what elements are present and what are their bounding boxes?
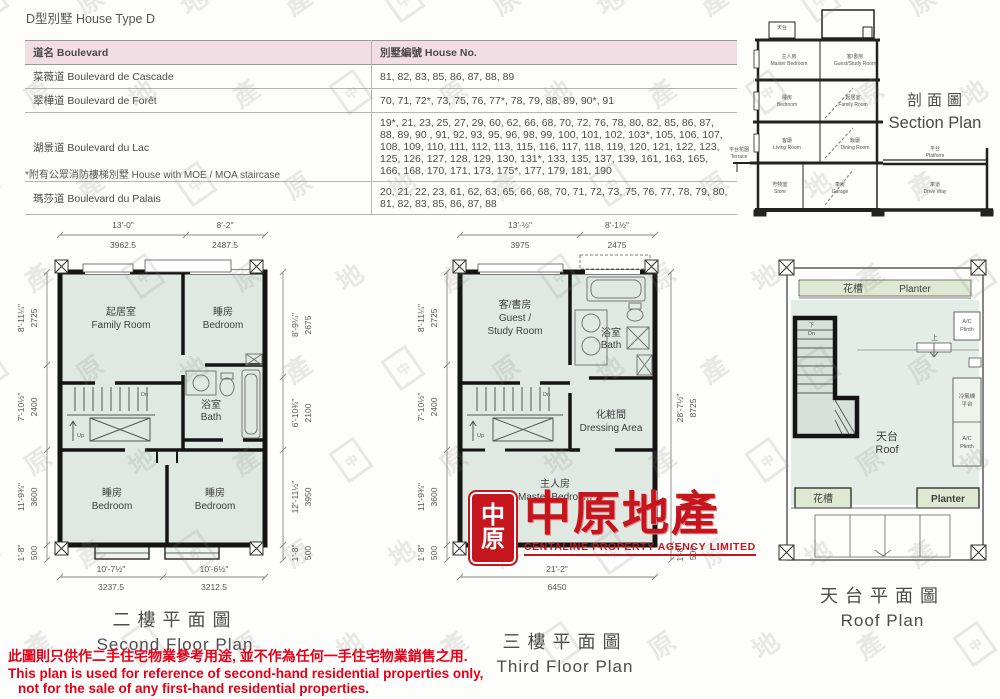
section-plan-drawing: 天台 主人房 Master Bedroom 客/書房 Guest/Study R… [725, 0, 1000, 232]
ac-label: A/C [962, 319, 971, 325]
table-header-row: 道名 Boulevard 別墅編號 House No. [25, 41, 737, 65]
boulevard-name: 翠樺道 Boulevard de Forêt [25, 89, 372, 113]
windows [478, 255, 650, 272]
room-label: Dining Room [841, 145, 870, 151]
house-numbers: 19*, 21, 23, 25, 27, 29, 60, 62, 66, 68,… [372, 113, 738, 182]
room-label-bedroom1-zh: 睡房 [213, 305, 233, 318]
room-label: Guest/Study Room [834, 61, 876, 67]
ac-platform: 冷氣機 平台 A/C Plinth [953, 378, 981, 466]
stairs-up-label: Up [477, 433, 484, 439]
dim-label: 6450 [548, 582, 567, 592]
dim-label: 2675 [303, 315, 313, 334]
room-label: 主人房 [781, 53, 796, 60]
boulevard-name: 菜薇道 Boulevard de Cascade [25, 65, 372, 89]
ac-plinth-top: A/C Plinth [954, 312, 980, 340]
room-label: 客廳 [782, 137, 792, 144]
room-label-guest-en1: Guest / [499, 313, 531, 324]
plinth-label: Plinth [960, 327, 974, 333]
section-plan-title: 剖面圖 Section Plan [889, 92, 982, 132]
second-floor-plan-drawing: Dn Up 起居室 Family Room 睡房 Bedroom 浴室 Bath… [15, 215, 335, 607]
dim-label: 6'-10¾" [290, 399, 300, 428]
ac-platform-zh2: 平台 [961, 400, 973, 408]
col-header-house-no: 別墅編號 House No. [372, 41, 738, 65]
room-label: 起居室 [845, 94, 860, 101]
room-label-bedroom2-en: Bedroom [92, 501, 133, 512]
dim-label: 11'-9¾" [416, 483, 426, 511]
centaline-seal-icon: 中 原 [468, 490, 518, 566]
roof-label-zh: 天台 [876, 429, 898, 443]
dim-label: 500 [303, 546, 313, 560]
up-label: 上 [931, 333, 938, 342]
section-room-labels: 天台 主人房 Master Bedroom 客/書房 Guest/Study R… [729, 24, 947, 195]
room-label-bath-en: Bath [601, 340, 622, 351]
room-label: 天台 [777, 24, 787, 31]
dim-label: 3600 [29, 487, 39, 506]
floor-plan-document: D型別墅 House Type D 道名 Boulevard 別墅編號 Hous… [0, 0, 1000, 699]
table-row: 瑪莎道 Boulevard du Palais 20, 21, 22, 23, … [25, 182, 737, 215]
house-numbers: 70, 71, 72*, 73, 75, 76, 77*, 78, 79, 88… [372, 89, 738, 113]
ac-label: A/C [962, 436, 971, 442]
room-label-bedroom3-en: Bedroom [195, 501, 236, 512]
dim-label: 2725 [429, 308, 439, 327]
plinth-label: Plinth [960, 444, 974, 450]
dim-label: 3962.5 [110, 240, 136, 250]
dim-label: 10'-6½" [200, 564, 229, 574]
dim-label: 500 [29, 546, 39, 560]
dim-label: 2725 [29, 308, 39, 327]
ac-platform-zh1: 冷氣機 [959, 392, 976, 400]
room-label-dressing-zh: 化粧間 [596, 408, 626, 421]
house-numbers: 81, 82, 83, 85, 86, 87, 88, 89 [372, 65, 738, 89]
dim-label: 2487.5 [212, 240, 238, 250]
section-title-zh: 剖面圖 [907, 92, 967, 109]
dim-label: 2100 [303, 403, 313, 422]
room-label: Platform [926, 153, 945, 159]
windows [83, 260, 250, 272]
dim-label: 8'-2" [217, 220, 234, 230]
top-planter: 花槽 Planter [799, 280, 971, 298]
stairs-dn-zh: 下 [809, 322, 815, 329]
room-label-bath-zh: 浴室 [201, 398, 221, 411]
table-row: 翠樺道 Boulevard de Forêt 70, 71, 72*, 73, … [25, 89, 737, 113]
stairs-up-label: Up [77, 433, 84, 439]
room-label: Bedroom [777, 102, 797, 108]
dim-label: 7'-10½" [16, 393, 26, 422]
dim-label: 8'-1½" [605, 220, 629, 230]
house-number-table: 道名 Boulevard 別墅編號 House No. 菜薇道 Boulevar… [25, 40, 737, 215]
planter-label-en: Planter [899, 284, 931, 295]
disclaimer-en2: not for the sale of any first-hand resid… [18, 681, 483, 696]
room-label: Store [774, 189, 786, 195]
dim-label: 2475 [608, 240, 627, 250]
dim-label: 12'-11½" [290, 481, 300, 514]
dim-label: 1'-8" [290, 545, 300, 562]
centaline-name: 中原地產 [524, 490, 756, 537]
house-numbers: 20, 21, 22, 23, 61, 62, 63, 65, 66, 68, … [372, 182, 738, 215]
dim-label: 3212.5 [201, 582, 227, 592]
centaline-subtitle: CENTALINE PROPERTY AGENCY LIMITED [524, 541, 756, 556]
room-label: Terrace [731, 154, 748, 160]
room-label: 車房 [835, 181, 845, 188]
col-header-boulevard: 道名 Boulevard [25, 41, 372, 65]
room-label-bath-zh: 浴室 [601, 326, 621, 339]
stairs-dn-label: Dn [543, 392, 550, 398]
room-label: 車道 [930, 181, 940, 188]
planter-br-label: Planter [931, 494, 965, 505]
room-label-family-zh: 起居室 [106, 305, 136, 318]
room-label: 貯物室 [772, 181, 787, 188]
dim-label: 8'-9¼" [290, 313, 300, 337]
room-label-bedroom2-zh: 睡房 [102, 486, 122, 499]
room-label-bath-en: Bath [201, 412, 222, 423]
room-label: 客/書房 [847, 53, 863, 60]
dim-label: 13'-0" [112, 220, 134, 230]
disclaimer-zh: 此圖則只供作二手住宅物業參考用途, 並不作為任何一手住宅物業銷售之用. [8, 646, 483, 666]
roof-title-zh: 天台平面圖 [765, 582, 1000, 608]
room-label: Drive Way [924, 189, 947, 195]
planter-bl-label: 花槽 [813, 492, 833, 505]
dim-label: 1'-8" [416, 545, 426, 562]
disclaimer-en1: This plan is used for reference of secon… [8, 666, 483, 681]
dim-label: 7'-10½" [416, 393, 426, 422]
stairs-dn-en: Dn [808, 331, 815, 337]
dim-label: 1'-8" [16, 545, 26, 562]
disclaimer: 此圖則只供作二手住宅物業參考用途, 並不作為任何一手住宅物業銷售之用. This… [8, 646, 483, 696]
room-label: 飯廳 [850, 137, 860, 144]
roof-title-en: Roof Plan [765, 611, 1000, 631]
room-label-guest-zh: 客/書房 [499, 298, 532, 311]
room-label-bedroom1-en: Bedroom [203, 320, 244, 331]
dim-label: 3950 [303, 487, 313, 506]
room-label: Garage [832, 189, 849, 195]
small-unit [969, 358, 981, 367]
planter-label-zh: 花槽 [843, 282, 863, 295]
room-label-family-en: Family Room [92, 320, 151, 331]
room-label: 睡房 [782, 94, 792, 101]
room-label: Family Room [838, 102, 867, 108]
room-label-guest-en2: Study Room [487, 326, 542, 337]
room-label: 平台花園 [729, 146, 749, 153]
dim-label: 3975 [511, 240, 530, 250]
seal-char-top: 中 [481, 504, 505, 528]
room-label-dressing-en: Dressing Area [580, 423, 643, 434]
dim-label: 2400 [429, 397, 439, 416]
dim-label: 13'-½" [508, 220, 532, 230]
page-title: D型別墅 House Type D [26, 8, 155, 27]
dim-label: 8'-11¼" [416, 304, 426, 332]
dim-label: 8'-11¼" [16, 304, 26, 332]
seal-char-bottom: 原 [481, 528, 505, 552]
centaline-logo: 中 原 中原地產 CENTALINE PROPERTY AGENCY LIMIT… [468, 490, 756, 566]
dim-label: 10'-7½" [97, 564, 126, 574]
table-footnote: *附有公眾消防樓梯別墅 House with MOE / MOA stairca… [25, 166, 280, 181]
dim-label: 3237.5 [98, 582, 124, 592]
roof-plan-drawing: 花槽 Planter 下 Dn 上 A/C Plinth [765, 250, 1000, 580]
canopy [791, 508, 979, 557]
boulevard-name: 瑪莎道 Boulevard du Palais [25, 182, 372, 215]
roof-plan-title: 天台平面圖 Roof Plan [765, 582, 1000, 631]
room-label: Master Bedroom [771, 61, 808, 67]
dim-label: 2400 [29, 397, 39, 416]
room-label-bedroom3-zh: 睡房 [205, 486, 225, 499]
dim-label: 28'-7½" [675, 394, 685, 423]
section-title-en: Section Plan [889, 114, 982, 132]
room-label: Living Room [773, 145, 801, 151]
room-label: 平台 [930, 145, 940, 152]
table-row: 菜薇道 Boulevard de Cascade 81, 82, 83, 85,… [25, 65, 737, 89]
dim-label: 11'-9¾" [16, 483, 26, 511]
second-floor-title-zh: 二樓平面圖 [15, 606, 335, 632]
dim-label: 8725 [688, 398, 698, 417]
dim-label: 500 [429, 546, 439, 560]
dim-label: 3600 [429, 487, 439, 506]
roof-label-en: Roof [875, 444, 899, 456]
stairs-dn-label: Dn [141, 392, 148, 398]
